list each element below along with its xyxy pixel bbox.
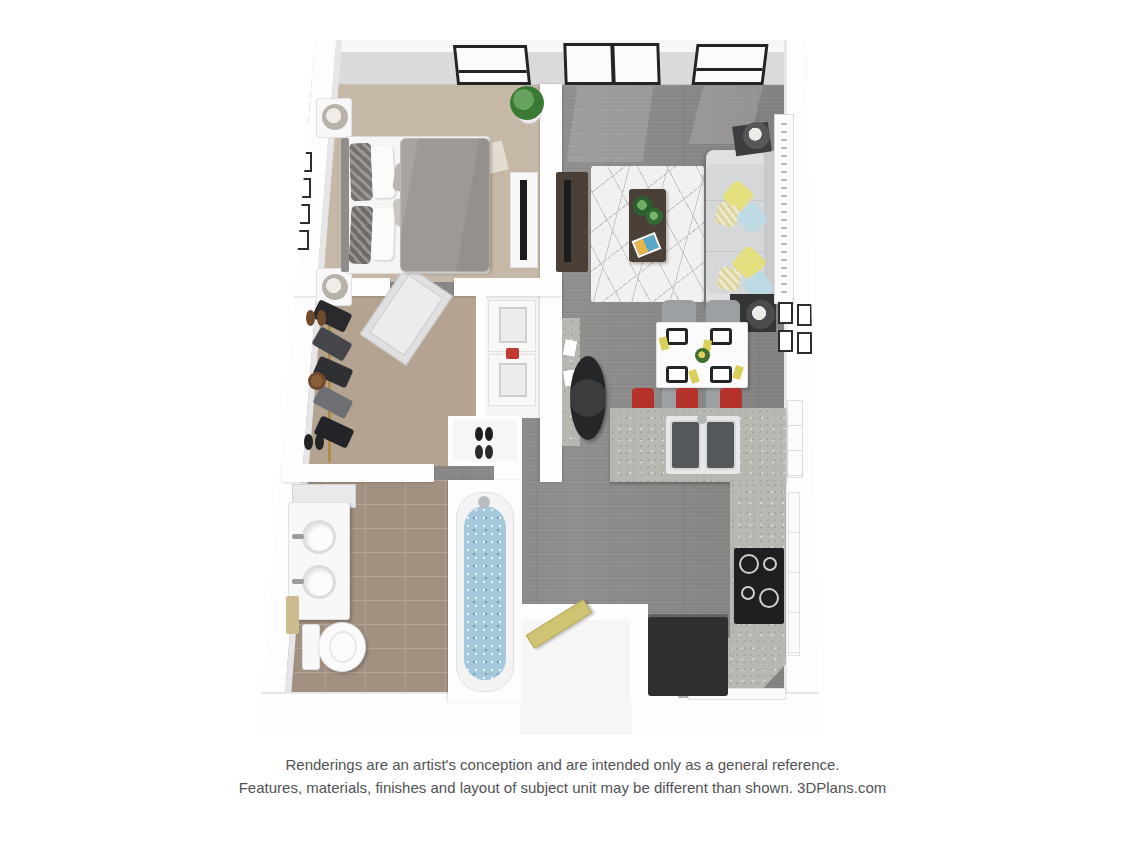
burner-1 <box>739 554 759 574</box>
vanity-sink-2 <box>302 565 336 599</box>
vanity-faucet-1 <box>292 534 304 539</box>
headboard <box>341 138 349 272</box>
bedroom-wall-frame-4 <box>295 230 309 250</box>
window-light-patch-1 <box>567 86 654 162</box>
washer <box>488 354 536 406</box>
dryer-door <box>499 307 527 343</box>
duvet <box>400 138 490 272</box>
media-console <box>556 172 588 272</box>
coffee-table-plant-2 <box>646 208 663 225</box>
pillow-white-2 <box>371 208 395 261</box>
apartment-shell <box>258 40 820 735</box>
living-window <box>691 44 768 85</box>
vanity-faucet-2 <box>292 579 304 584</box>
placemat-2 <box>710 328 732 345</box>
office-chair <box>570 356 606 440</box>
sink-basin-left <box>670 420 701 470</box>
window-mullion <box>696 68 762 71</box>
bedroom-window <box>453 45 531 85</box>
bedroom-plant <box>510 86 544 120</box>
cooktop <box>734 548 784 624</box>
burner-3 <box>741 586 755 600</box>
dryer <box>488 300 536 352</box>
bedroom-wall-frame-2 <box>297 178 311 198</box>
pillow-dark-1 <box>349 143 373 202</box>
placemat-1 <box>666 328 688 345</box>
burner-2 <box>763 557 777 571</box>
shoe-cubby <box>448 416 522 466</box>
living-sliding-door <box>563 43 660 85</box>
placemat-3 <box>666 366 688 383</box>
sink-faucet <box>697 414 707 424</box>
pillow-dark-2 <box>348 205 373 264</box>
detergent-bottle <box>506 348 519 359</box>
floor-plan <box>258 40 820 735</box>
dining-wall-frame-3 <box>778 330 793 352</box>
toilet-seat <box>329 631 357 663</box>
shelf-shoes-1 <box>306 310 315 326</box>
disclaimer-line-1: Renderings are an artist's conception an… <box>0 753 1125 776</box>
cubby-shoes-2 <box>475 445 483 459</box>
pillow-white-1 <box>371 145 396 198</box>
table-lamp-top <box>322 104 348 130</box>
bedroom-tv <box>520 180 527 260</box>
slider-mullion <box>610 46 615 82</box>
art-script <box>781 123 787 295</box>
vanity-sink-1 <box>302 520 336 554</box>
shelf-shoes-2 <box>304 434 313 450</box>
dining-wall-frame-2 <box>797 304 812 326</box>
table-lamp-bottom <box>322 274 348 300</box>
towel <box>286 596 299 634</box>
sink-basin-right <box>705 420 736 470</box>
base-cabinets-right <box>788 492 800 656</box>
placemat-4 <box>710 366 732 383</box>
dining-wall-frame-4 <box>797 332 812 354</box>
washer-door <box>499 363 527 397</box>
window-mullion <box>459 70 527 73</box>
art-canvas <box>774 114 794 304</box>
burner-4 <box>759 588 779 608</box>
disclaimer: Renderings are an artist's conception an… <box>0 753 1125 799</box>
floor-lamp-top <box>743 122 770 149</box>
wall-cabinets-right <box>787 400 803 478</box>
bedroom-south-wall-right <box>454 278 562 296</box>
dining-centerpiece <box>695 348 710 363</box>
floor-plan-rendering: Renderings are an artist's conception an… <box>0 0 1125 844</box>
sofa-pillow-stripe-2 <box>716 266 742 292</box>
bedroom-wall-frame-1 <box>298 152 312 172</box>
disclaimer-line-2: Features, materials, finishes and layout… <box>0 776 1125 799</box>
dining-wall-frame-1 <box>778 302 793 324</box>
toilet-bowl <box>318 622 366 672</box>
bedroom-wall-frame-3 <box>296 204 310 224</box>
double-sink <box>666 416 740 474</box>
entry-east-wall <box>630 604 648 702</box>
bathtub-water <box>464 506 506 680</box>
shelf-hat <box>308 372 326 390</box>
floor-lamp-bottom <box>746 300 775 329</box>
refrigerator <box>648 614 728 696</box>
living-tv <box>564 180 571 262</box>
bathroom-north-wall-left <box>282 464 434 482</box>
bathtub-faucet <box>478 496 490 508</box>
cubby-shoes-1 <box>475 427 483 441</box>
laundry-nook-wall <box>476 296 486 418</box>
